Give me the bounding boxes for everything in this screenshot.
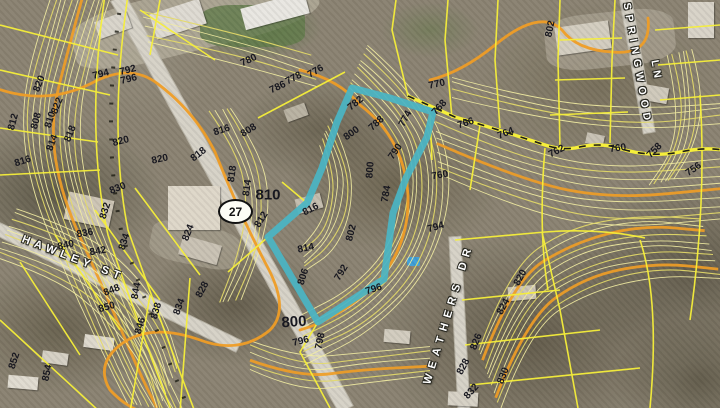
- contour: [0, 252, 160, 408]
- contour: [665, 51, 689, 181]
- contour: [12, 219, 176, 372]
- contour: [500, 277, 720, 408]
- contour: [80, 0, 184, 408]
- parcel-lines: [0, 0, 720, 408]
- contour: [494, 259, 715, 393]
- contour: [487, 241, 709, 374]
- contour: [143, 17, 313, 65]
- map-overlay: [0, 0, 720, 408]
- route-27-number: 27: [229, 205, 242, 219]
- contour: [75, 0, 178, 408]
- contour: [16, 209, 179, 363]
- contour: [649, 55, 676, 185]
- contour: [145, 26, 315, 74]
- index-contour: [496, 265, 719, 398]
- contour: [48, 0, 155, 408]
- map-canvas[interactable]: HAWLEY ST WEATHERS DR SPRINGWOOD LN 7947…: [0, 0, 720, 408]
- contour: [27, 0, 134, 404]
- contour: [497, 270, 720, 403]
- route-27-shield: 27: [218, 199, 253, 224]
- contour: [148, 42, 318, 87]
- contour: [142, 11, 312, 55]
- contour: [479, 217, 701, 351]
- contour: [302, 83, 408, 323]
- contour: [24, 0, 128, 403]
- contour: [674, 49, 701, 179]
